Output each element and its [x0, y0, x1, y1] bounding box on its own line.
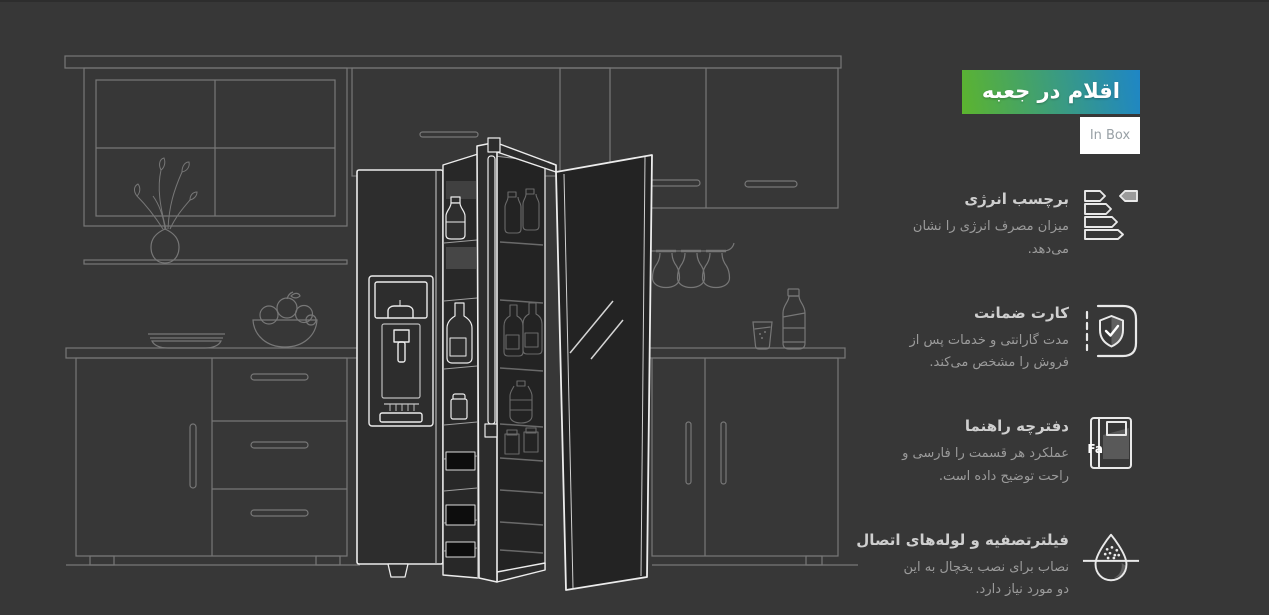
- in-box-items-list: برچسب انرژی میزان مصرف انرژی را نشان می‌…: [856, 189, 1140, 602]
- energy-label-icon: [1082, 189, 1140, 247]
- open-door-art: [556, 155, 652, 590]
- manual-book-icon: Fa: [1082, 416, 1140, 474]
- item-title: برچسب انرژی: [889, 190, 1069, 208]
- kitchen-refrigerator-illustration: [0, 0, 900, 615]
- item-text: فیلترتصفیه و لوله‌های اتصال نصاب برای نص…: [856, 530, 1069, 603]
- filter-pipes-icon: [1082, 530, 1140, 588]
- warranty-card-icon: [1082, 303, 1140, 361]
- svg-text:Fa: Fa: [1088, 442, 1103, 456]
- item-text: کارت ضمانت مدت گارانتی و خدمات پس از فرو…: [889, 303, 1069, 376]
- item-title: دفترچه راهنما: [889, 417, 1069, 435]
- item-text: دفترچه راهنما عملکرد هر قسمت را فارسی و …: [889, 416, 1069, 489]
- item-text: برچسب انرژی میزان مصرف انرژی را نشان می‌…: [889, 189, 1069, 262]
- list-item-energy-label: برچسب انرژی میزان مصرف انرژی را نشان می‌…: [856, 189, 1140, 262]
- section-subtitle: In Box: [1080, 117, 1140, 154]
- in-box-section: اقلام در جعبه In Box برچسب انرژی میزان م…: [0, 0, 1269, 615]
- section-title-badge: اقلام در جعبه: [962, 70, 1140, 114]
- item-title: فیلترتصفیه و لوله‌های اتصال: [856, 531, 1069, 549]
- in-box-panel: اقلام در جعبه In Box برچسب انرژی میزان م…: [800, 70, 1140, 602]
- list-item-warranty-card: کارت ضمانت مدت گارانتی و خدمات پس از فرو…: [856, 303, 1140, 376]
- item-description: میزان مصرف انرژی را نشان می‌دهد.: [889, 216, 1069, 262]
- item-description: نصاب برای نصب یخچال به این دو مورد نیاز …: [889, 557, 1069, 603]
- list-item-filter-pipes: فیلترتصفیه و لوله‌های اتصال نصاب برای نص…: [856, 530, 1140, 603]
- refrigerator-art: [357, 138, 652, 590]
- item-description: مدت گارانتی و خدمات پس از فروش را مشخص م…: [889, 330, 1069, 376]
- list-item-manual-book: Fa دفترچه راهنما عملکرد هر قسمت را فارسی…: [856, 416, 1140, 489]
- item-title: کارت ضمانت: [889, 304, 1069, 322]
- item-description: عملکرد هر قسمت را فارسی و راحت توضیح داد…: [889, 443, 1069, 489]
